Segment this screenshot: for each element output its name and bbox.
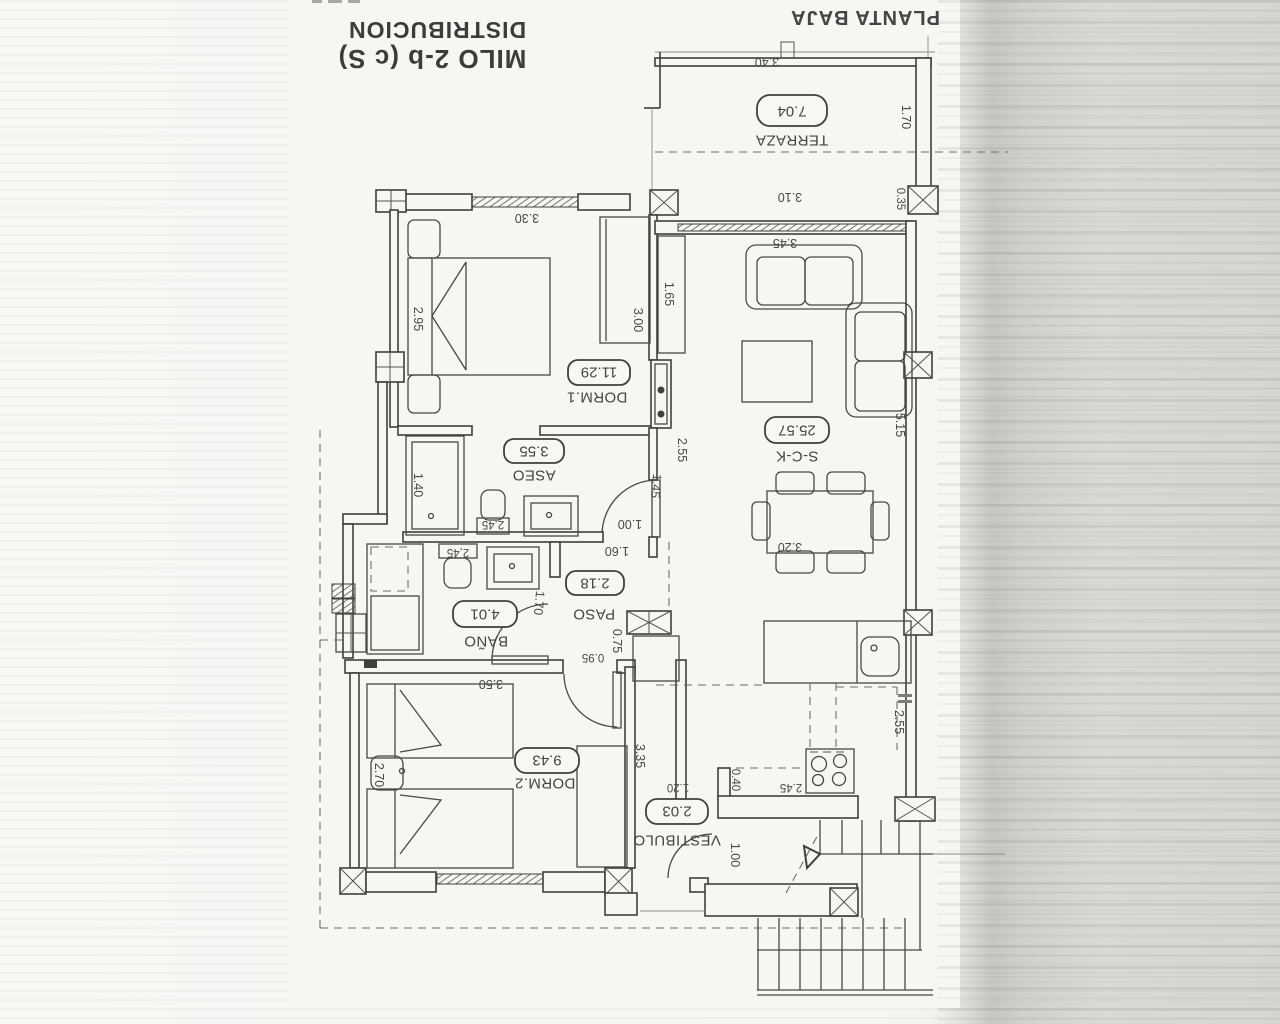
dorm2-window (437, 874, 543, 884)
salon-window (678, 224, 906, 231)
dim-vestibulo-width: 1.20 (667, 781, 689, 793)
salon-area-badge: 25.57 (778, 422, 816, 439)
pillar-kitchen-right-bottom (895, 797, 935, 821)
dim-terraza-width: 3.40 (755, 55, 779, 69)
floor-title: PLANTA BAJA (790, 6, 940, 28)
pillar-entrance (830, 888, 858, 916)
pillar-hall-kitchen (627, 611, 671, 634)
dim-salon-door-opening: 1.00 (618, 517, 642, 531)
dim-terraza-depth: 1.70 (899, 105, 913, 129)
dim-terraza-opening: 3.10 (778, 190, 802, 204)
dim-kitchen-step: 0.40 (729, 769, 741, 791)
floor-plan-drawing: DISTRIBUCION MILO 2-b (c S) PLANTA BAJA (0, 0, 1280, 1024)
pillar-dorm2-bottomright (605, 868, 632, 895)
terraza-parapet-right (916, 58, 931, 188)
dim-dorm1-window-wall: 3.30 (515, 211, 539, 225)
dorm1-left-wall (390, 210, 398, 427)
terraza-room-name: TERRAZA (756, 132, 829, 149)
vestibulo-room-name: VESTIBULO (633, 832, 721, 849)
aseo-label: 3.55 ASEO (504, 439, 564, 484)
dim-aseo-toilet: 2,45 (482, 518, 504, 530)
dim-salon-door: 1.45 (648, 473, 664, 499)
salon-room-name: S-C-K (776, 448, 819, 465)
model-title: MILO 2-b (c S) (338, 44, 527, 74)
aseo-room-name: ASEO (512, 467, 555, 484)
dim-dorm2-window-wall: 3.50 (479, 677, 503, 691)
dorm2-label: 9.43 DORM.2 (515, 748, 579, 792)
door-stop-mark (364, 660, 377, 668)
salon-right-wall (906, 221, 916, 821)
terraza-label: 7.04 TERRAZA (756, 95, 829, 149)
page-edge-artifact (312, 0, 360, 3)
dim-salon-length: 5.15 (893, 413, 907, 437)
dim-salon-cabinet: 1.65 (662, 282, 676, 306)
dim-terraza-pillar: 0.35 (894, 188, 906, 210)
aseo-area-badge: 3.55 (519, 443, 548, 460)
dim-bano-toilet: 2,45 (447, 546, 469, 558)
pillar-salon-right (904, 352, 932, 378)
kitchen-bottom-wall (718, 796, 858, 818)
dim-salon-window-wall: 3.45 (773, 236, 797, 250)
dim-salon-door-wall: 2.55 (675, 438, 689, 462)
bano-area-badge: 4.01 (470, 606, 499, 623)
pillar-kitchen-right-top (904, 610, 932, 635)
dim-paso-depth: 0.75 (610, 629, 624, 653)
dim-kitchen-stove: 2.45 (780, 781, 802, 793)
dim-dorm1-width: 2.95 (411, 307, 425, 331)
paper-background (288, 0, 960, 1008)
dim-entrance-door: 1.00 (728, 843, 742, 867)
dim-dorm1-wardrobe: 3.00 (631, 308, 645, 332)
bano-room-name: BAÑO (464, 633, 508, 650)
terraza-area-badge: 7.04 (777, 103, 806, 120)
dim-paso-width: 1.60 (605, 544, 629, 558)
paso-area-badge: 2.18 (580, 575, 609, 592)
dorm2-area-badge: 9.43 (532, 752, 561, 769)
dorm1-window (472, 197, 578, 207)
dorm2-room-name: DORM.2 (515, 775, 576, 792)
pillar-terraza-corner (908, 186, 938, 214)
dorm1-area-badge: 11.29 (581, 364, 617, 381)
pillar-dorm1-topleft (376, 190, 406, 212)
dim-kitchen-counter: 2.55 (892, 710, 906, 734)
bano-dorm2-wall (345, 660, 563, 673)
scanned-floor-plan-page: DISTRIBUCION MILO 2-b (c S) PLANTA BAJA (0, 0, 1280, 1024)
dim-dorm2-nightstand: 2.70 (372, 763, 386, 787)
dim-bano-door: 1.70 (531, 590, 547, 616)
dorm2-left-wall (350, 673, 359, 868)
vestibulo-area-badge: 2.03 (662, 803, 691, 820)
dim-aseo-shower: 1.40 (411, 473, 425, 497)
dim-paso-opening: 0.95 (582, 651, 604, 663)
dorm1-label: 11.29 DORM.1 (567, 360, 630, 406)
dim-dining-table: 3.20 (778, 540, 802, 554)
pillar-dorm1-topright (650, 190, 678, 215)
dim-dorm2-depth: 3.35 (633, 744, 647, 768)
hall-wall-niche (651, 360, 671, 428)
terraza-parapet-top (655, 58, 931, 66)
pillar-left-middle (376, 352, 404, 382)
pillar-dorm2-bottomleft (340, 868, 366, 894)
dorm1-room-name: DORM.1 (567, 389, 628, 406)
paso-room-name: PASO (573, 606, 615, 623)
distribution-title: DISTRIBUCION (348, 17, 526, 43)
